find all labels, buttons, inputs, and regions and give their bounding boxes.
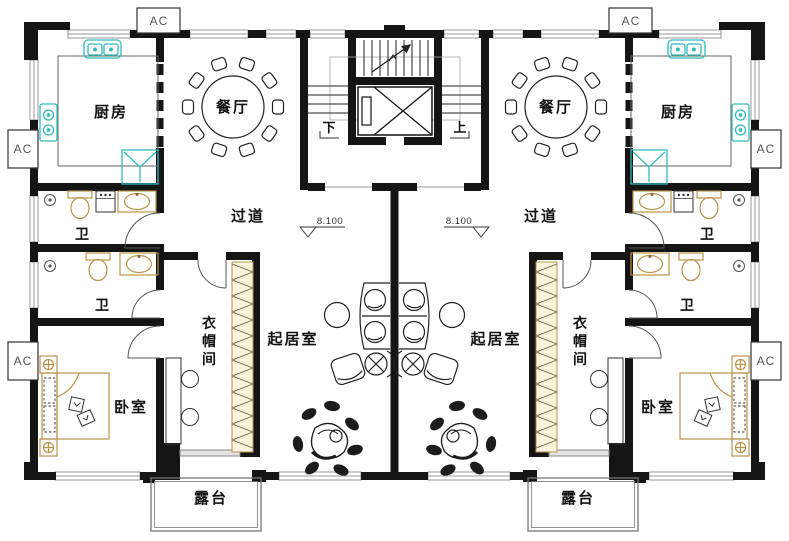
bathroom1-fixtures — [45, 191, 157, 219]
room-label-living-right: 起居室 — [469, 330, 521, 348]
bedroom-furniture — [40, 356, 109, 456]
room-label-bath1-left: 卫 — [75, 226, 89, 242]
room-label-terrace-right: 露台 — [561, 489, 595, 507]
room-label-living-left: 起居室 — [266, 330, 318, 348]
room-label-corridor-left: 过道 — [231, 207, 265, 225]
room-label-kitchen-left: 厨房 — [94, 103, 128, 121]
room-label-dining-right: 餐厅 — [539, 98, 573, 116]
ac-label-left-lower: AC — [14, 354, 33, 368]
floor-plan-page: 厨房 厨房 餐厅 餐厅 过道 过道 卫 卫 卫 卫 卧室 卧室 起居室 起居室 … — [0, 0, 789, 541]
ac-label-top-right: AC — [622, 14, 641, 28]
stair-label-down: 下 — [322, 120, 335, 135]
room-label-bath1-right: 卫 — [700, 226, 714, 242]
room-label-cloakroom-left: 衣 帽 间 — [202, 315, 217, 367]
ac-label-top-left: AC — [150, 14, 169, 28]
floor-plan-canvas: 厨房 厨房 餐厅 餐厅 过道 过道 卫 卫 卫 卫 卧室 卧室 起居室 起居室 … — [0, 0, 789, 541]
svg-text:间: 间 — [573, 351, 587, 367]
room-label-bath2-left: 卫 — [95, 297, 109, 313]
stair-core — [300, 25, 489, 191]
plant-decor — [292, 400, 364, 478]
stair-label-up: 上 — [453, 120, 466, 135]
svg-text:衣: 衣 — [202, 315, 217, 331]
room-label-bedroom-left: 卧室 — [114, 398, 148, 416]
room-label-corridor-right: 过道 — [524, 207, 558, 225]
elevator-counterweight — [362, 97, 371, 125]
svg-text:帽: 帽 — [202, 333, 216, 349]
svg-text:衣: 衣 — [573, 315, 588, 331]
living-room-furniture — [325, 283, 396, 386]
elevation-value-left: 8.100 — [317, 216, 343, 227]
ac-label-left-upper: AC — [14, 142, 33, 156]
room-label-bath2-right: 卫 — [680, 297, 694, 313]
room-label-kitchen-right: 厨房 — [661, 103, 695, 121]
elevator — [348, 77, 442, 145]
room-label-cloakroom-right: 衣 帽 间 — [573, 315, 588, 367]
svg-text:间: 间 — [202, 351, 216, 367]
svg-text:帽: 帽 — [573, 333, 587, 349]
bathroom2-fixtures — [45, 253, 159, 281]
room-label-dining-left: 餐厅 — [216, 98, 250, 116]
room-label-bedroom-right: 卧室 — [641, 398, 675, 416]
terrace-slider — [180, 450, 240, 456]
room-label-terrace-left: 露台 — [194, 489, 228, 507]
ac-label-right-upper: AC — [757, 142, 776, 156]
ac-label-right-lower: AC — [757, 354, 776, 368]
elevation-value-right: 8.100 — [446, 216, 472, 227]
